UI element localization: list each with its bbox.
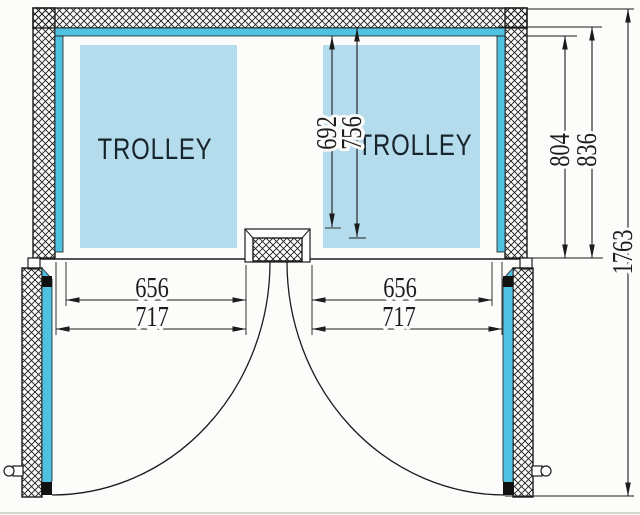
dim-label-656-left: 656	[135, 273, 169, 304]
floor-plan-svg: TROLLEY TROLLEY	[0, 0, 640, 515]
dim-label-756: 756	[337, 116, 368, 150]
cold-room-plan-drawing: TROLLEY TROLLEY	[0, 0, 640, 515]
lining-top	[55, 28, 505, 36]
door-right	[503, 258, 551, 497]
dim-label-1763: 1763	[608, 230, 639, 275]
door-left-panel	[22, 268, 42, 497]
door-left-top-hardware	[42, 276, 52, 287]
door-right-handle-knob	[541, 466, 551, 476]
center-door-post	[245, 229, 310, 262]
post-core	[253, 238, 302, 261]
door-right-gasket	[503, 268, 513, 492]
door-right-top-hardware	[503, 276, 513, 287]
door-right-bottom-hardware	[503, 482, 514, 495]
door-left-gasket	[42, 268, 52, 492]
door-right-panel	[513, 268, 533, 497]
dim-label-836: 836	[572, 133, 603, 167]
trolley-right-label: TROLLEY	[358, 127, 473, 161]
door-left-handle-knob	[4, 466, 14, 476]
lining-right	[497, 36, 505, 252]
door-left-bottom-hardware	[41, 482, 52, 495]
trolley-left: TROLLEY	[80, 45, 237, 248]
dim-label-717-right: 717	[382, 302, 416, 333]
wall-left	[33, 8, 55, 258]
wall-right	[505, 8, 527, 258]
trolley-left-label: TROLLEY	[98, 131, 213, 165]
dim-label-656-right: 656	[383, 273, 417, 304]
wall-top	[33, 8, 527, 28]
lining-left	[55, 36, 63, 252]
door-left	[4, 258, 52, 497]
dim-label-717-left: 717	[135, 302, 169, 333]
